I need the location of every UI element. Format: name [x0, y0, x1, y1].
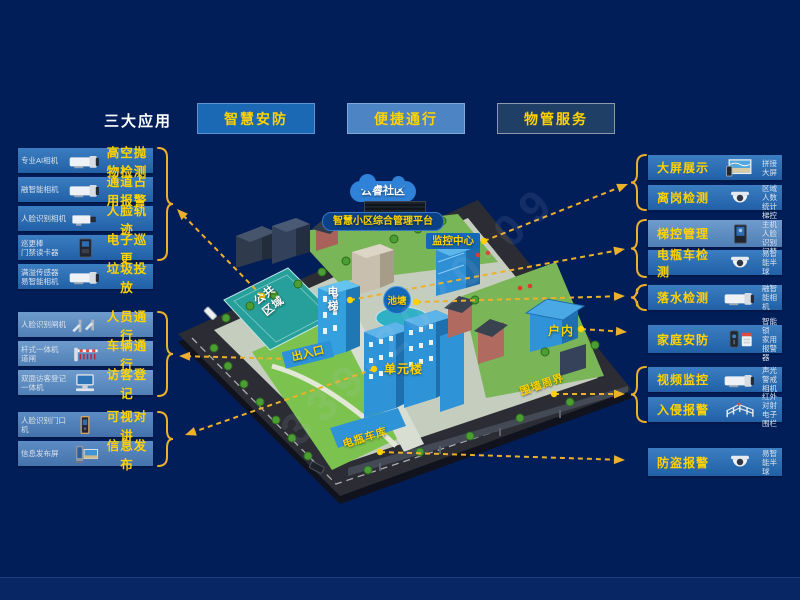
feature-row: 防盗报警易智能半球: [648, 448, 782, 476]
smart-community-overview: 三大应用 智慧安防 便捷通行 物管服务 专业AI相机高空抛物检测融智能相机通道占…: [0, 0, 800, 600]
door-station-icon: [66, 414, 104, 436]
connector-source-dot: [347, 297, 353, 303]
barrier-gate-icon: [66, 343, 104, 365]
app-button-convenient-passage[interactable]: 便捷通行: [347, 103, 465, 134]
feature-row: 人脸识别门口 机可视对讲: [18, 412, 153, 437]
connector-arrowhead: [613, 247, 625, 256]
map-cars: [204, 307, 325, 474]
app-button-smart-security[interactable]: 智慧安防: [197, 103, 315, 134]
device-label: 易智能半球: [759, 449, 779, 476]
bullet-camera-icon: [66, 266, 104, 288]
feature-row: 视频监控声光警戒相机: [648, 367, 782, 392]
feature-label: 大屏展示: [651, 159, 721, 176]
dome-camera-icon: [721, 252, 759, 274]
map-label-indoor: 户内: [548, 322, 574, 339]
feature-row: 专业AI相机高空抛物检测: [18, 148, 153, 173]
feature-row: 人脸识别闸机人员通行: [18, 312, 153, 337]
connector-source-dot: [578, 326, 584, 332]
device-label: 红外对射 电子围栏: [759, 392, 779, 428]
video-wall-icon: [721, 157, 759, 179]
map-label-pond: 池塘: [383, 286, 411, 314]
connector-arrow-line: [188, 356, 290, 359]
feature-row: 梯控管理梯控主机 人脸识别门禁: [648, 220, 782, 247]
card-reader-icon: [66, 237, 104, 259]
map-label-ebike-garage: 电瓶车库: [341, 424, 389, 452]
device-label: 融智能相机: [21, 185, 66, 194]
map-label-public-area: 公共 区域: [252, 283, 288, 319]
connector-arrow-line: [193, 369, 374, 432]
footer-bar: [0, 577, 800, 600]
bullet-camera-icon: [721, 287, 759, 309]
group-brace: [631, 220, 646, 277]
dome-camera-icon: [721, 451, 759, 473]
device-label: 人脸识别门口 机: [21, 416, 66, 434]
feature-label: 家庭安防: [651, 331, 721, 348]
feature-row: 杆式一体机 道闸车辆通行: [18, 341, 153, 366]
bullet-camera-icon: [66, 179, 104, 201]
connector-arrow-line: [416, 296, 616, 302]
map-label-monitoring-center: 监控中心: [426, 233, 480, 249]
platform-banner: 智慧小区综合管理平台: [322, 212, 444, 231]
feature-label: 梯控管理: [651, 225, 721, 242]
dome-camera-icon: [721, 187, 759, 209]
feature-label: 防盗报警: [651, 454, 721, 471]
device-label: 声光警戒相机: [759, 366, 779, 393]
connector-arrowhead: [614, 292, 625, 301]
map-label-entrance: 出入口: [282, 340, 335, 369]
feature-label: 落水检测: [651, 289, 721, 306]
device-label: 区域人数统计: [759, 184, 779, 211]
box-camera-icon: [66, 208, 104, 230]
bullet-camera-icon: [721, 369, 759, 391]
feature-label: 信息发布: [104, 435, 150, 473]
section-title: 三大应用: [104, 110, 172, 131]
map-label-unit-building: 单元楼: [384, 360, 423, 377]
connector-source-dot: [413, 299, 419, 305]
feature-row: 入侵报警红外对射 电子围栏: [648, 397, 782, 422]
device-label: 拼接大屏: [759, 159, 779, 177]
feature-row: 落水检测融智能相机: [648, 285, 782, 310]
turnstile-icon: [66, 314, 104, 336]
elevator-host-icon: [721, 223, 759, 245]
device-label: 满溢传感器 易智能相机: [21, 268, 66, 286]
connector-arrowhead: [185, 427, 197, 435]
group-brace: [158, 148, 173, 260]
connector-arrowhead: [614, 455, 625, 464]
device-label: 杆式一体机 道闸: [21, 345, 66, 363]
device-label: 双面访客登记 一体机: [21, 374, 66, 392]
connector-arrowhead: [614, 390, 625, 399]
map-green-zones: [252, 214, 604, 470]
device-label: 人脸识别相机: [21, 214, 66, 223]
connector-source-dot: [481, 238, 487, 244]
group-brace: [631, 155, 646, 210]
feature-row: 巡更棒 门禁读卡器电子巡更: [18, 235, 153, 260]
group-brace: [631, 367, 646, 422]
feature-label: 视频监控: [651, 371, 721, 388]
feature-label: 垃圾投放: [104, 258, 150, 296]
device-label: 智能锁 家用报警器: [759, 317, 779, 362]
cloud-badge: 云睿社区: [350, 181, 416, 202]
smart-lock-icon: [721, 328, 759, 350]
feature-row: 满溢传感器 易智能相机垃圾投放: [18, 264, 153, 289]
app-button-property-service[interactable]: 物管服务: [497, 103, 615, 134]
map-label-perimeter-wall: 围墙周界: [518, 370, 566, 399]
connector-arrow-line: [484, 187, 620, 241]
connector-arrow-line: [183, 215, 262, 296]
feature-row: 家庭安防智能锁 家用报警器: [648, 325, 782, 353]
connector-source-dot: [371, 366, 377, 372]
feature-label: 电瓶车检测: [651, 246, 721, 280]
group-brace: [631, 285, 646, 310]
feature-row: 大屏展示拼接大屏: [648, 155, 782, 180]
map-lanterns: [476, 251, 533, 291]
device-label: 专业AI相机: [21, 156, 66, 165]
bullet-camera-icon: [66, 150, 104, 172]
feature-row: 信息发布屏信息发布: [18, 441, 153, 466]
signage-screen-icon: [66, 443, 104, 465]
device-label: 信息发布屏: [21, 449, 66, 458]
group-brace: [158, 312, 173, 396]
map-trees: [210, 217, 599, 474]
watermark: 339-2020-09: [176, 85, 664, 544]
connector-arrow-line: [581, 329, 618, 331]
perimeter-fence-icon: [721, 399, 759, 421]
connector-source-dot: [551, 391, 557, 397]
connector-arrowhead: [616, 327, 627, 336]
connector-arrowhead: [179, 352, 190, 361]
feature-label: 访客登记: [104, 364, 150, 402]
connector-arrowhead: [616, 184, 628, 192]
feature-row: 离岗检测区域人数统计: [648, 185, 782, 210]
device-label: 易智能半球: [759, 249, 779, 276]
map-label-elevator: 电梯: [324, 286, 340, 314]
feature-row: 融智能相机通道占用报警: [18, 177, 153, 202]
map-perimeter-wall: [348, 386, 628, 476]
feature-label: 离岗检测: [651, 189, 721, 206]
device-label: 人脸识别闸机: [21, 320, 66, 329]
feature-row: 人脸识别相机人脸轨迹: [18, 206, 153, 231]
feature-label: 入侵报警: [651, 401, 721, 418]
device-label: 巡更棒 门禁读卡器: [21, 239, 66, 257]
device-label: 融智能相机: [759, 284, 779, 311]
kiosk-icon: [66, 372, 104, 394]
connector-source-dot: [377, 449, 383, 455]
map-platform: [178, 200, 632, 504]
feature-row: 双面访客登记 一体机访客登记: [18, 370, 153, 395]
connector-arrowhead: [177, 209, 188, 220]
group-brace: [158, 412, 173, 466]
feature-row: 电瓶车检测易智能半球: [648, 250, 782, 275]
connector-arrow-line: [380, 452, 616, 460]
